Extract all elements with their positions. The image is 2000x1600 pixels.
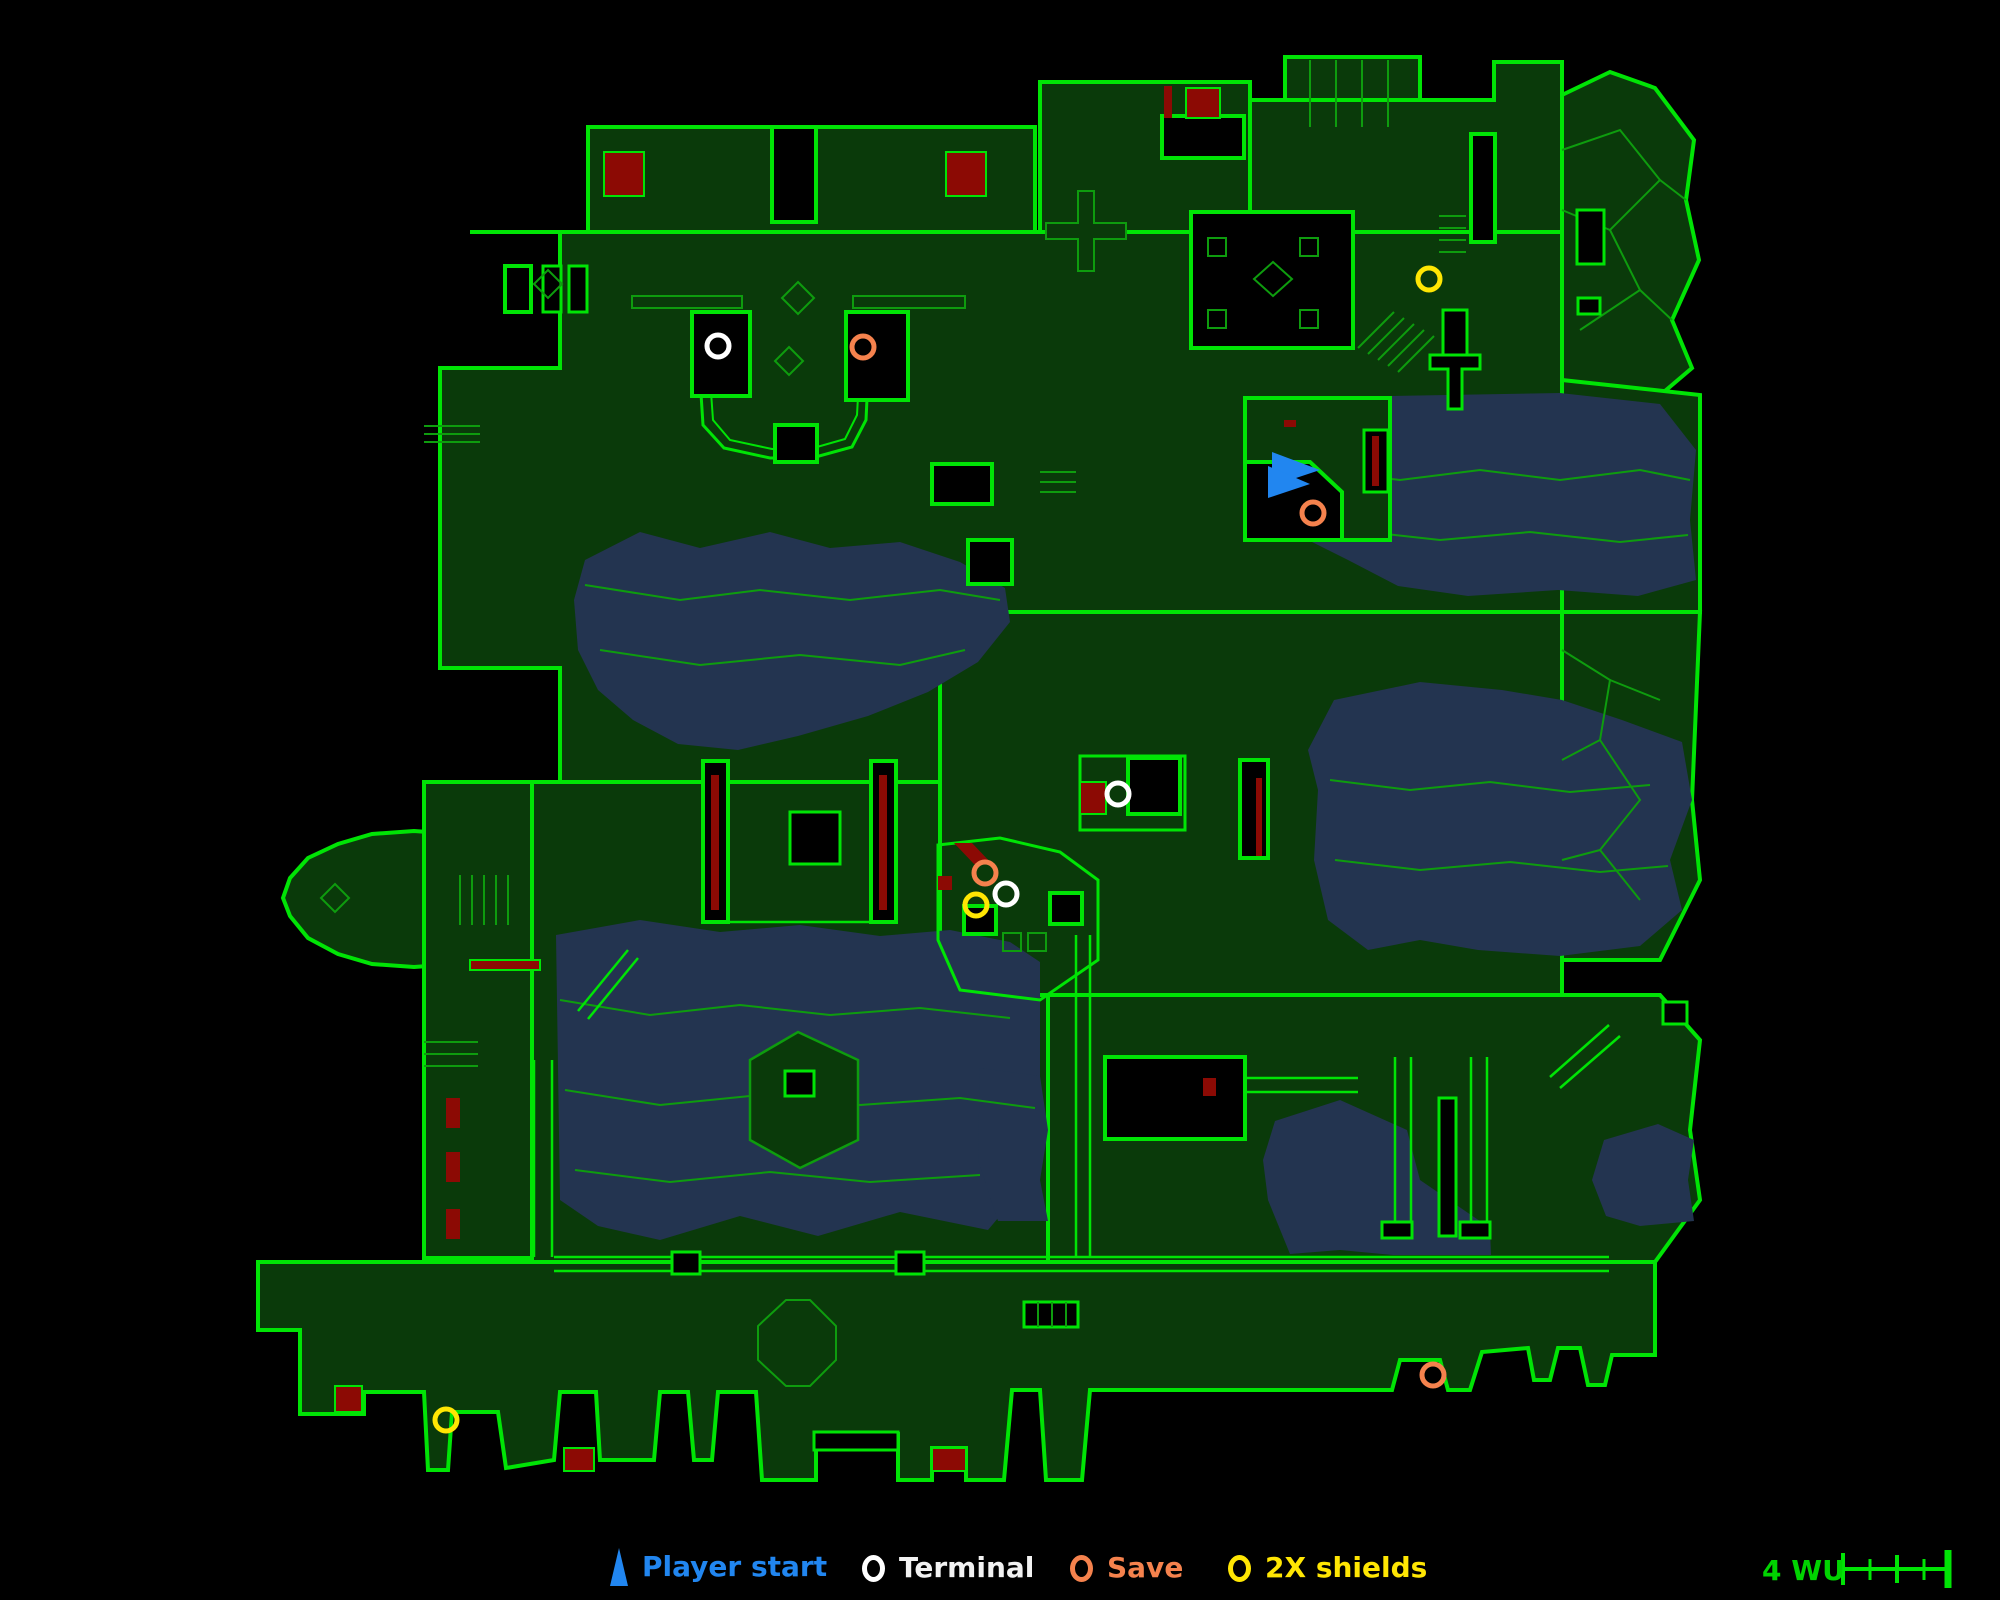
map-island bbox=[750, 1032, 858, 1168]
red-door bbox=[446, 1209, 460, 1239]
black-room bbox=[1460, 1222, 1490, 1238]
black-room bbox=[1471, 134, 1495, 242]
red-door bbox=[564, 1448, 594, 1471]
save-marker bbox=[1422, 1364, 1444, 1386]
legend-item-player-start: Player start bbox=[610, 1548, 827, 1586]
black-room bbox=[790, 812, 840, 864]
black-room bbox=[1382, 1222, 1412, 1238]
red-door bbox=[470, 960, 540, 970]
black-room bbox=[1577, 210, 1604, 264]
red-room bbox=[1080, 782, 1106, 814]
black-room bbox=[772, 127, 816, 222]
map-left-column bbox=[424, 782, 532, 1258]
save-icon bbox=[1070, 1555, 1093, 1582]
map-canvas bbox=[0, 0, 2000, 1600]
black-room bbox=[968, 540, 1012, 584]
red-door bbox=[1186, 88, 1220, 118]
black-room bbox=[1128, 758, 1180, 814]
black-room bbox=[505, 266, 531, 312]
player-start-icon bbox=[610, 1548, 628, 1586]
red-door bbox=[1284, 420, 1296, 427]
black-room bbox=[1105, 1057, 1245, 1139]
black-room bbox=[814, 1432, 898, 1450]
black-room bbox=[932, 464, 992, 504]
legend-item-save: Save bbox=[1070, 1548, 1183, 1588]
black-room bbox=[1578, 298, 1600, 314]
red-door bbox=[879, 775, 887, 910]
legend-label-terminal: Terminal bbox=[899, 1554, 1034, 1582]
scale-label: 4 WU bbox=[1762, 1554, 1845, 1587]
red-door bbox=[335, 1386, 362, 1412]
lake-lower-right bbox=[1592, 1124, 1694, 1226]
legend-item-terminal: Terminal bbox=[862, 1548, 1034, 1588]
black-room bbox=[1439, 1098, 1456, 1236]
red-door bbox=[932, 1448, 966, 1471]
black-room bbox=[896, 1252, 924, 1274]
black-room bbox=[775, 425, 817, 462]
red-door bbox=[604, 152, 644, 196]
automap-screen: Player start Terminal Save 2X shields 4 … bbox=[0, 0, 2000, 1600]
black-room bbox=[569, 266, 587, 312]
red-door bbox=[1203, 1078, 1216, 1096]
red-door bbox=[446, 1098, 460, 1128]
legend-label-save: Save bbox=[1107, 1554, 1183, 1582]
black-room bbox=[1050, 893, 1082, 924]
red-door bbox=[1372, 436, 1379, 486]
black-room bbox=[1663, 1002, 1687, 1024]
legend-item-2x-shields: 2X shields bbox=[1228, 1548, 1427, 1588]
2x-shields-icon bbox=[1228, 1555, 1251, 1582]
red-door bbox=[446, 1152, 460, 1182]
black-room bbox=[1162, 116, 1244, 158]
legend-label-player-start: Player start bbox=[642, 1553, 827, 1581]
black-room bbox=[1443, 310, 1467, 355]
black-room bbox=[672, 1252, 700, 1274]
red-door bbox=[946, 152, 986, 196]
terminal-icon bbox=[862, 1555, 885, 1582]
legend-label-2x-shields: 2X shields bbox=[1265, 1554, 1427, 1582]
red-door bbox=[1164, 86, 1172, 118]
black-room bbox=[785, 1071, 814, 1096]
red-door bbox=[711, 775, 719, 910]
black-room bbox=[1240, 760, 1268, 858]
red-door bbox=[938, 876, 952, 890]
red-door bbox=[1256, 778, 1262, 856]
